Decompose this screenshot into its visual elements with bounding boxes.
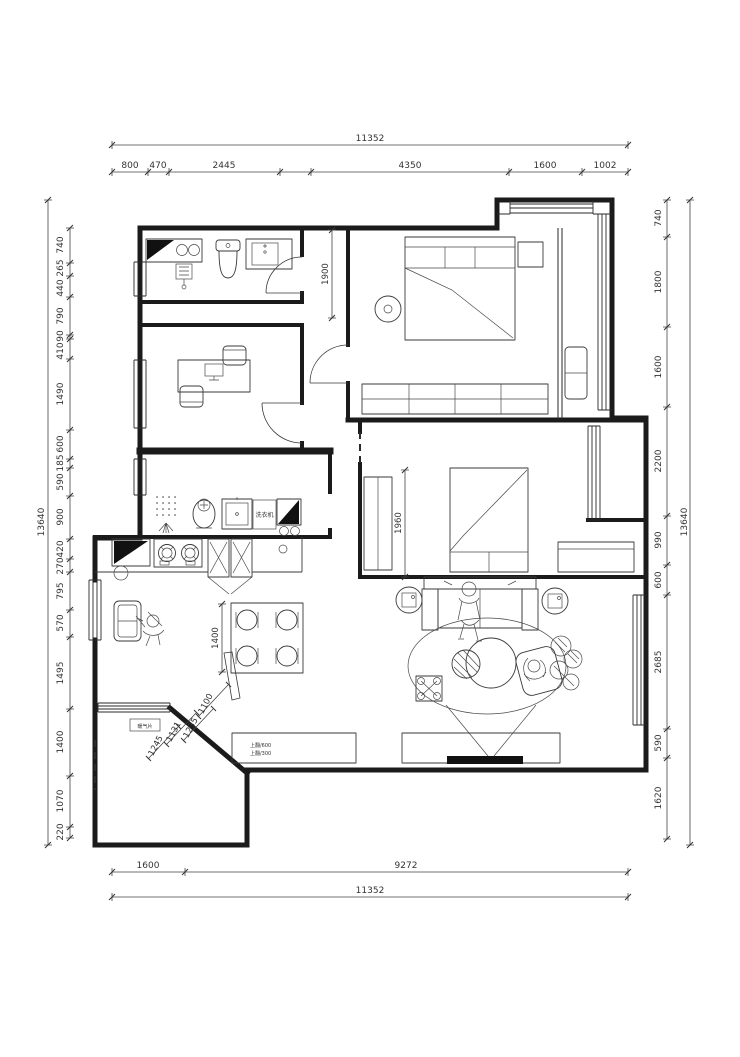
dining-table — [231, 603, 303, 673]
dim-top-seg-4: 1600 — [534, 161, 557, 171]
dim-chain-bottom-segments: 1600 9272 — [109, 861, 631, 876]
dim-bottom-overall: 11352 — [356, 886, 385, 896]
washing-machine-label: 洗衣机 — [255, 511, 273, 519]
dim-right-seg-8: 1620 — [654, 786, 664, 809]
dim-right-seg-1: 1800 — [654, 270, 664, 293]
window-kitchen-left — [89, 580, 101, 640]
porch: 暖气片 — [130, 719, 160, 731]
window-bedroom2-bay — [588, 426, 600, 520]
dim-left-seg-3: 790 — [56, 307, 66, 324]
toilet1-icon — [216, 240, 240, 278]
interior-walls — [95, 228, 646, 577]
bed2 — [450, 468, 528, 572]
fridge-icon — [208, 539, 252, 594]
shower-icon — [157, 497, 175, 533]
dim-hall-1900: 1900 — [321, 263, 331, 285]
bathroom1-fixtures — [146, 239, 292, 289]
dim-entry-1100: 1100 — [197, 692, 216, 716]
dim-top-seg-5: 1002 — [594, 161, 617, 171]
rug — [408, 618, 566, 714]
dim-left-seg-15: 1495 — [56, 662, 66, 685]
dim-left-seg-9: 590 — [56, 473, 66, 490]
dim-chain-top-segments: 800 470 2445 4350 1600 1002 — [109, 161, 631, 176]
dim-left-seg-0: 740 — [56, 236, 66, 253]
flip-cabinet-note-2: 上翻/300 — [250, 750, 271, 757]
dim-chain-right-overall: 13640 — [680, 197, 694, 848]
dim-right-seg-3: 2200 — [654, 449, 664, 472]
living-room-furniture: 上翻/600 上翻/300 — [232, 577, 582, 764]
dim-bed2-clearance: 1960 — [394, 467, 409, 580]
dim-top-seg-1: 470 — [149, 161, 166, 171]
dim-right-seg-0: 740 — [654, 209, 664, 226]
vanity2-icon — [277, 499, 301, 536]
cook-figure — [136, 612, 164, 646]
dim-chain-left-segments: 740 265 440 790 90 410 1490 600 185 590 … — [56, 225, 74, 841]
flip-cabinet-note-1: 上翻/600 — [250, 742, 271, 749]
dim-bed2-1960: 1960 — [394, 512, 404, 534]
side-table-left — [396, 587, 422, 613]
tv-icon — [447, 756, 523, 764]
kitchen-sink-icon — [114, 601, 143, 641]
dresser2 — [558, 542, 634, 572]
radiator: 暖气片 — [130, 719, 160, 731]
dim-left-seg-8: 185 — [56, 454, 66, 471]
dining-chair — [236, 646, 258, 666]
flip-cabinet: 上翻/600 上翻/300 — [232, 733, 356, 763]
dim-top-seg-3: 4350 — [399, 161, 422, 171]
floor-plan-drawing: 11352 800 470 2445 4350 1600 1002 13640 … — [0, 0, 740, 1057]
dining-chair — [276, 610, 298, 630]
dining-set — [231, 603, 303, 673]
dim-left-seg-1: 265 — [56, 259, 66, 276]
balcony-ac-unit — [565, 347, 587, 399]
dim-top-overall: 11352 — [356, 134, 385, 144]
dim-right-seg-2: 1600 — [654, 355, 664, 378]
dim-right-seg-6: 2685 — [654, 651, 664, 674]
dim-top-seg-2: 2445 — [213, 161, 236, 171]
outer-walls — [95, 200, 646, 845]
dim-bottom-seg-1: 9272 — [395, 861, 418, 871]
vanity-corner-icon — [146, 239, 202, 262]
washing-machine: 洗衣机 — [253, 500, 276, 529]
dim-left-seg-2: 440 — [56, 279, 66, 296]
bedroom1-furniture — [362, 237, 587, 414]
study-furniture — [178, 346, 250, 407]
basin-counter-icon — [246, 239, 292, 269]
kitchen-fixtures — [95, 537, 302, 646]
dim-entry-1245: 1245 — [147, 734, 166, 758]
door-bedroom1 — [310, 345, 348, 383]
door-bathroom1 — [266, 257, 302, 293]
dim-chain-right-segments: 740 1800 1600 2200 990 600 2685 590 1620 — [654, 197, 671, 842]
dim-dining-1400: 1400 — [211, 627, 221, 649]
door-study — [262, 403, 302, 443]
dim-left-seg-4: 90 — [56, 330, 66, 342]
dim-left-seg-16: 1400 — [56, 730, 66, 753]
balcony-divider — [558, 228, 562, 420]
person-sitting — [524, 658, 546, 681]
dim-chain-left-overall: 13640 — [37, 197, 52, 848]
dim-left-seg-13: 795 — [56, 582, 66, 599]
dim-right-seg-5: 600 — [654, 571, 664, 588]
shower-sprayer-icon — [176, 264, 192, 289]
dining-chair — [276, 646, 298, 666]
wardrobe1 — [362, 384, 548, 414]
dim-top-seg-0: 800 — [121, 161, 138, 171]
monitor-icon — [205, 364, 223, 376]
dim-left-overall: 13640 — [37, 507, 47, 536]
dim-dining-width: 1400 — [211, 601, 226, 675]
interior-dimensions: 1900 1960 1400 1245 1131 1235 1100 — [146, 227, 409, 761]
dim-left-seg-11: 420 — [56, 540, 66, 557]
wardrobe2 — [364, 477, 392, 570]
dim-right-seg-4: 990 — [654, 531, 664, 548]
dim-left-seg-5: 410 — [56, 342, 66, 359]
dim-bottom-seg-0: 1600 — [137, 861, 160, 871]
dim-chain-top-overall: 11352 — [109, 134, 631, 149]
dim-left-seg-12: 270 — [56, 557, 66, 574]
dim-hall-depth: 1900 — [321, 227, 336, 321]
dim-entry-1131: 1131 — [165, 720, 184, 744]
counter-sink-drain — [279, 545, 287, 553]
nightstand-round — [375, 296, 401, 322]
dim-left-seg-14: 570 — [56, 614, 66, 631]
dim-left-seg-10: 900 — [56, 508, 66, 525]
stove-icon — [154, 539, 202, 567]
dim-left-seg-6: 1490 — [56, 382, 66, 405]
dining-chair — [236, 610, 258, 630]
dim-chain-bottom-overall: 11352 — [109, 886, 631, 901]
desk-chair-bottom — [180, 386, 203, 407]
sink2-icon — [222, 497, 252, 529]
floor-plan-sheet: 11352 800 470 2445 4350 1600 1002 13640 … — [0, 0, 740, 1057]
radiator-label: 暖气片 — [137, 723, 152, 730]
side-table-right — [542, 588, 568, 614]
dim-right-overall: 13640 — [680, 507, 690, 536]
bed1 — [405, 237, 515, 340]
corner-cabinet-icon — [112, 539, 150, 580]
window-porch-top — [98, 703, 170, 712]
coffee-table — [452, 638, 516, 688]
desk-chair-top — [223, 346, 246, 365]
bathroom2-fixtures: 洗衣机 — [157, 497, 301, 536]
corner-table — [416, 676, 442, 701]
dim-left-seg-17: 1070 — [56, 789, 66, 812]
dim-right-seg-7: 590 — [654, 734, 664, 751]
nightstand-square — [518, 242, 543, 267]
toilet2-icon — [193, 499, 215, 528]
person-standing — [458, 582, 482, 641]
dim-left-seg-18: 220 — [56, 823, 66, 840]
dim-left-seg-7: 600 — [56, 435, 66, 452]
